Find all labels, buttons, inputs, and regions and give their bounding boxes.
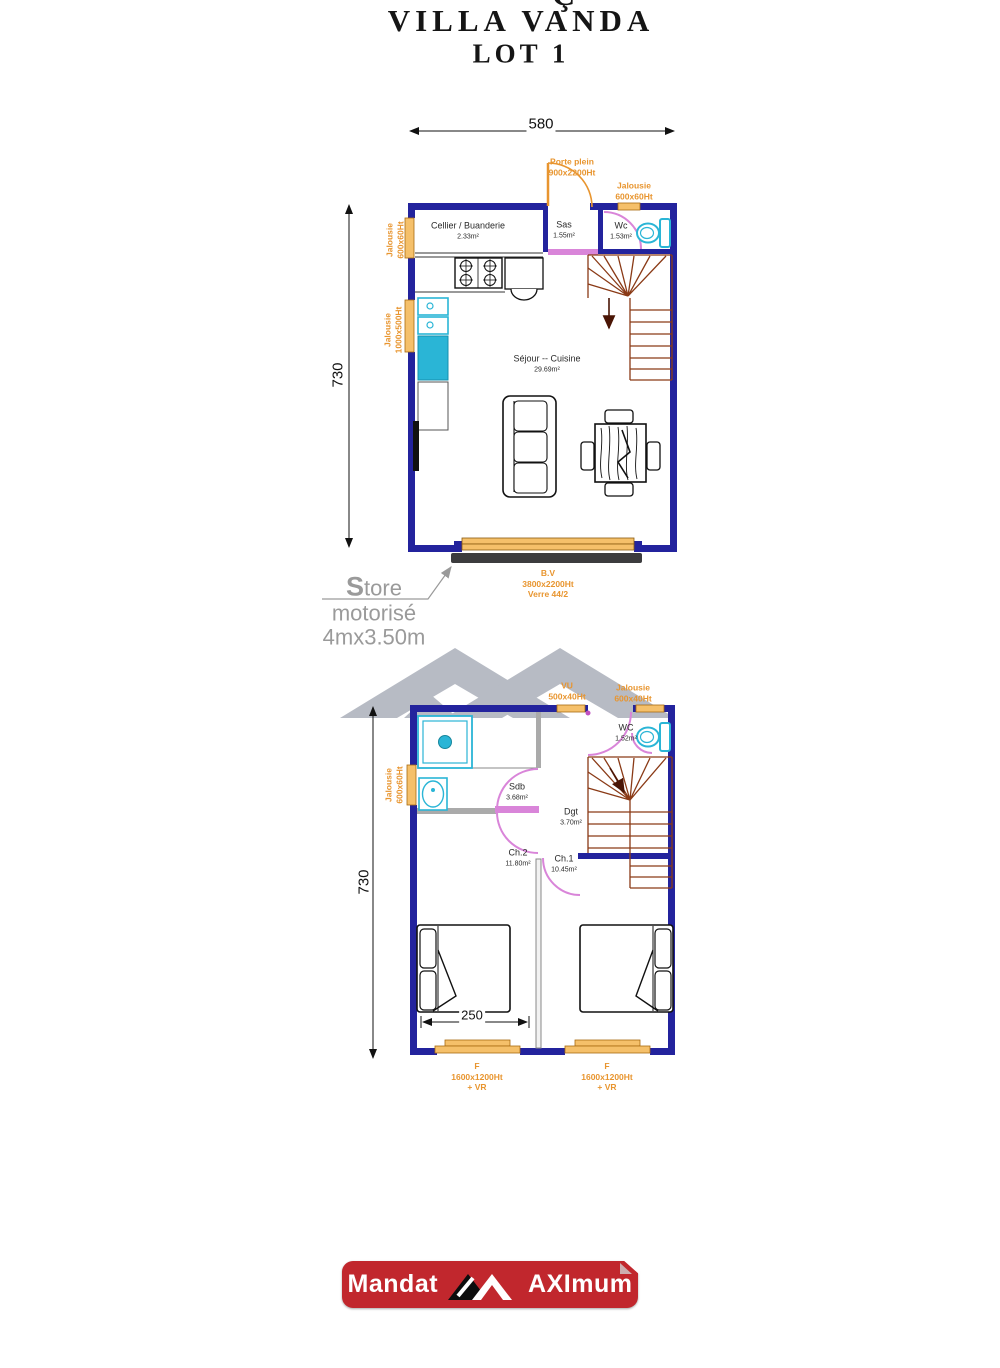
room-name: Ch.2 <box>505 848 530 860</box>
floor2-stairs <box>588 757 672 888</box>
room-label-ch1: Ch.1 10.45m² <box>551 854 577 875</box>
maximum-logo-icon <box>446 1266 520 1304</box>
page-subtitle-lot: LOT 1 <box>473 39 570 70</box>
room-name: Séjour -- Cuisine <box>513 354 580 366</box>
floor1-jalousie-left-upper-label: Jalousie 600x60Ht <box>384 221 405 258</box>
agency-logo-banner: Mandat AXImum <box>342 1261 638 1308</box>
room-area: 1.55m² <box>553 231 575 240</box>
floor1-stairs <box>588 255 672 380</box>
floor1-width-dimension: 580 <box>526 116 555 133</box>
room-name: Cellier / Buanderie <box>431 221 505 233</box>
room-name: Sdb <box>506 782 528 794</box>
floor2-jalousie-top-label: Jalousie 600x40Ht <box>614 682 651 703</box>
room-name: Wc <box>610 221 632 233</box>
room-label-wc-floor2: WC 1.52m² <box>615 723 637 744</box>
bay-window-label: B.V 3800x2200Ht Verre 44/2 <box>522 568 574 600</box>
floor2-vu-label: VU 500x40Ht <box>548 680 585 701</box>
bed-left <box>417 925 510 1012</box>
room-area: 11.80m² <box>505 859 530 868</box>
room-area: 1.53m² <box>610 232 632 241</box>
room-area: 2.33m² <box>431 232 505 241</box>
floor1-store-bar <box>451 553 642 563</box>
room-label-cellier: Cellier / Buanderie 2.33m² <box>431 221 505 242</box>
floor2-beds <box>417 925 673 1012</box>
banner-folded-corner-shadow <box>620 1263 632 1274</box>
room-label-dgt: Dgt 3.70m² <box>560 807 582 828</box>
floor2-sink <box>419 778 447 810</box>
store-motorise-note: Store motorisé 4mx3.50m <box>323 573 426 650</box>
mandat-label: Mandat <box>348 1270 439 1299</box>
room-area: 29.69m² <box>513 365 580 374</box>
floor1-toilet <box>637 219 670 247</box>
tv-unit <box>413 421 419 471</box>
room-area: 1.52m² <box>615 734 637 743</box>
room-area: 3.68m² <box>506 793 528 802</box>
floor1-height-dimension: 730 <box>330 360 347 389</box>
floor2-height-dimension: 730 <box>356 867 373 896</box>
floor1-bay-window <box>462 538 634 550</box>
room-label-sdb: Sdb 3.68m² <box>506 782 528 803</box>
room-name: Sas <box>553 220 575 232</box>
bed-width-dimension: 250 <box>459 1008 485 1023</box>
floor1-jalousie-left-lower-label: Jalousie 1000x500Ht <box>382 307 403 354</box>
kitchen-sink-counter <box>505 258 543 300</box>
room-label-wc-floor1: Wc 1.53m² <box>610 221 632 242</box>
plan-linework <box>0 0 1000 1368</box>
room-label-ch2: Ch.2 11.80m² <box>505 848 530 869</box>
room-name: WC <box>615 723 637 735</box>
floor1-entry-door-label: Porte plein 900x2200Ht <box>549 156 596 177</box>
page-title: VILLA VANDA <box>388 3 655 39</box>
floor2-toilet <box>637 723 670 751</box>
floor2-jalousie-left-label: Jalousie 600x60Ht <box>383 766 404 803</box>
window-left-label: F 1600x1200Ht + VR <box>451 1061 503 1093</box>
room-label-sas: Sas 1.55m² <box>553 220 575 241</box>
room-area: 3.70m² <box>560 818 582 827</box>
window-right-label: F 1600x1200Ht + VR <box>581 1061 633 1093</box>
room-name: Ch.1 <box>551 854 577 866</box>
floor1-jalousie-topright-label: Jalousie 600x60Ht <box>615 180 652 201</box>
floor1-sofa <box>503 396 556 497</box>
floor-plan-document: Ç VILLA VANDA LOT 1 580 730 Porte plein … <box>0 0 1000 1368</box>
room-name: Dgt <box>560 807 582 819</box>
room-label-sejour: Séjour -- Cuisine 29.69m² <box>513 354 580 375</box>
stove <box>455 258 502 288</box>
floor2-shower <box>418 716 472 768</box>
kitchen-cyan-unit <box>418 298 448 430</box>
brand-label: AXImum <box>528 1270 632 1299</box>
room-area: 10.45m² <box>551 865 577 874</box>
floor1-dining-table <box>581 410 660 496</box>
bed-right <box>580 925 673 1012</box>
